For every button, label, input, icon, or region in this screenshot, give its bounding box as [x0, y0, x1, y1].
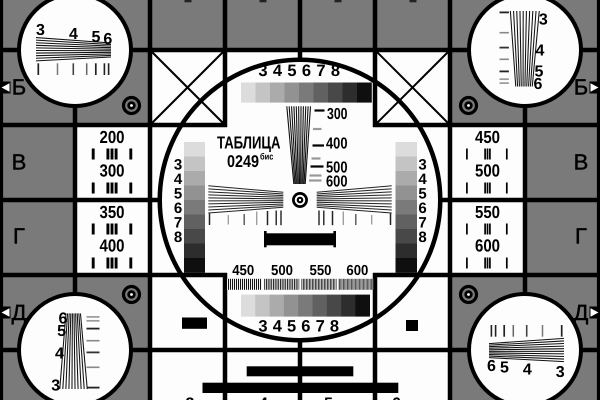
svg-text:7: 7 — [316, 318, 325, 336]
svg-text:6: 6 — [301, 318, 310, 336]
svg-text:Г: Г — [575, 224, 587, 249]
svg-text:ТАБЛИЦА: ТАБЛИЦА — [217, 133, 281, 153]
svg-text:3: 3 — [36, 22, 45, 39]
svg-text:3: 3 — [539, 12, 548, 29]
svg-text:3: 3 — [556, 364, 565, 381]
svg-text:400: 400 — [326, 136, 348, 153]
svg-text:3: 3 — [186, 396, 195, 400]
svg-text:7: 7 — [316, 62, 325, 80]
svg-text:6: 6 — [302, 62, 311, 80]
svg-text:5: 5 — [324, 396, 333, 400]
svg-text:Д: Д — [12, 300, 27, 325]
svg-text:550: 550 — [475, 202, 500, 222]
svg-text:500: 500 — [271, 263, 293, 279]
svg-text:3: 3 — [258, 318, 267, 336]
svg-text:6: 6 — [103, 31, 112, 48]
svg-text:8: 8 — [174, 229, 182, 246]
svg-text:600: 600 — [475, 236, 500, 256]
svg-text:8: 8 — [331, 62, 340, 80]
svg-text:500: 500 — [475, 161, 500, 181]
svg-text:600: 600 — [346, 263, 368, 279]
svg-text:6: 6 — [392, 396, 401, 400]
svg-text:4: 4 — [273, 318, 283, 336]
svg-text:300: 300 — [100, 161, 125, 181]
svg-text:5: 5 — [500, 360, 509, 377]
svg-text:5: 5 — [57, 323, 66, 340]
svg-text:5: 5 — [287, 62, 296, 80]
svg-text:В: В — [574, 150, 589, 175]
svg-text:300: 300 — [327, 106, 348, 123]
svg-text:0249: 0249 — [227, 152, 259, 171]
svg-text:3: 3 — [258, 62, 267, 80]
svg-text:200: 200 — [100, 127, 125, 147]
svg-text:5: 5 — [287, 318, 296, 336]
svg-text:4: 4 — [55, 346, 64, 363]
svg-text:5: 5 — [92, 29, 101, 46]
svg-text:4: 4 — [273, 62, 283, 80]
svg-text:4: 4 — [536, 43, 545, 60]
svg-text:350: 350 — [100, 202, 125, 222]
svg-text:8: 8 — [418, 229, 426, 246]
svg-text:4: 4 — [523, 362, 532, 379]
svg-text:600: 600 — [326, 173, 348, 190]
svg-text:Г: Г — [13, 224, 25, 249]
svg-text:В: В — [12, 150, 27, 175]
svg-text:4: 4 — [259, 396, 268, 400]
svg-text:бис: бис — [260, 152, 274, 162]
svg-text:6: 6 — [533, 76, 542, 93]
svg-text:3: 3 — [51, 378, 60, 395]
svg-text:Б: Б — [574, 75, 588, 100]
svg-text:Б: Б — [12, 75, 26, 100]
svg-text:6: 6 — [487, 358, 496, 375]
svg-text:550: 550 — [310, 263, 332, 279]
svg-text:450: 450 — [232, 263, 254, 279]
svg-text:8: 8 — [330, 318, 339, 336]
svg-text:400: 400 — [100, 236, 125, 256]
svg-text:4: 4 — [69, 26, 78, 43]
svg-text:Д: Д — [574, 300, 589, 325]
svg-text:450: 450 — [475, 127, 500, 147]
